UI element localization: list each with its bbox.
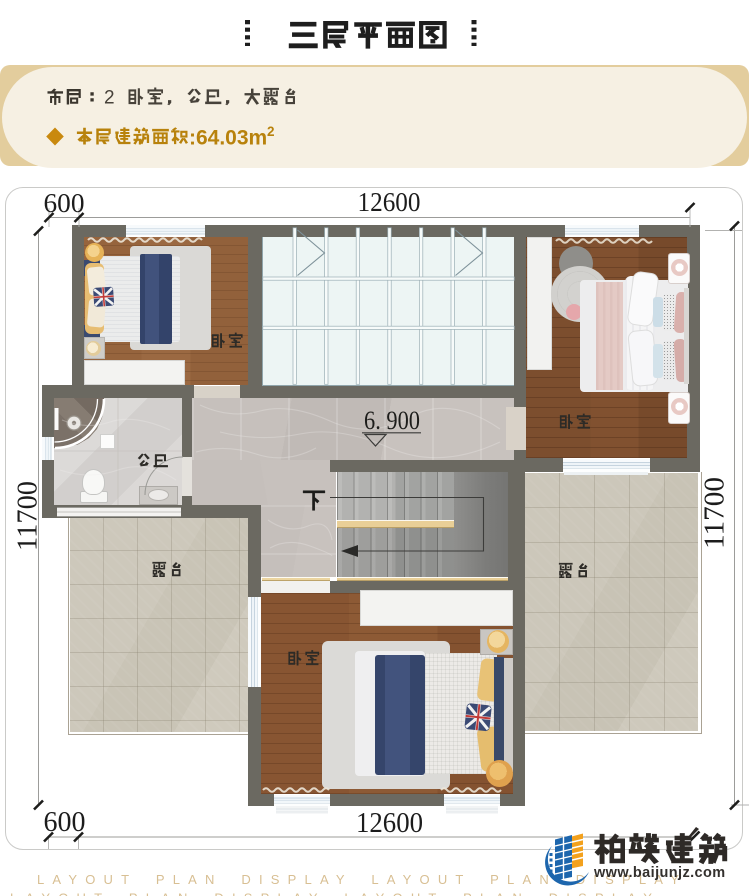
svg-text:2: 2 (267, 124, 275, 139)
svg-text:LAYOUT PLAN DISPLAY LAYOUT PLA: LAYOUT PLAN DISPLAY LAYOUT PLAN DISPLAY (37, 872, 687, 887)
svg-text:12600: 12600 (358, 187, 421, 217)
svg-text:12600: 12600 (356, 807, 423, 839)
svg-text:6. 900: 6. 900 (364, 406, 420, 435)
svg-text:2: 2 (104, 88, 115, 109)
svg-text::64.03m: :64.03m (189, 127, 267, 150)
svg-text:600: 600 (44, 188, 85, 218)
svg-text:LAYOUT PLAN DISPLAY LAYOUT PLA: LAYOUT PLAN DISPLAY LAYOUT PLAN DISPLAY (10, 891, 660, 896)
svg-text:11700: 11700 (12, 481, 44, 551)
svg-text:11700: 11700 (699, 477, 731, 549)
svg-text:600: 600 (44, 806, 86, 838)
svg-text:www.baijunjz.com: www.baijunjz.com (593, 865, 726, 881)
